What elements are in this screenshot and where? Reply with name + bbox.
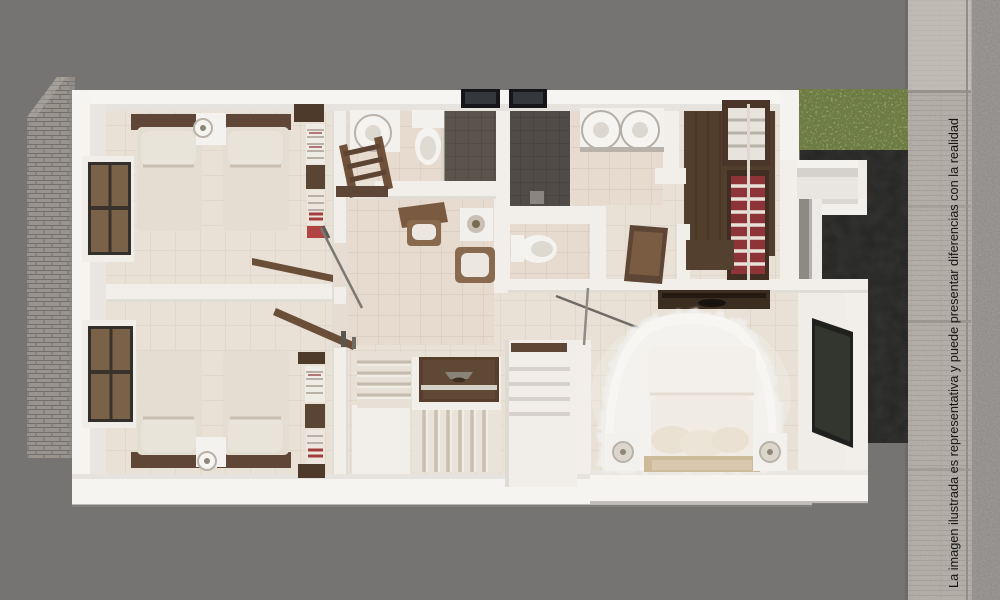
svg-text:La imagen ilustrada es represe: La imagen ilustrada es representativa y … [947,118,961,588]
